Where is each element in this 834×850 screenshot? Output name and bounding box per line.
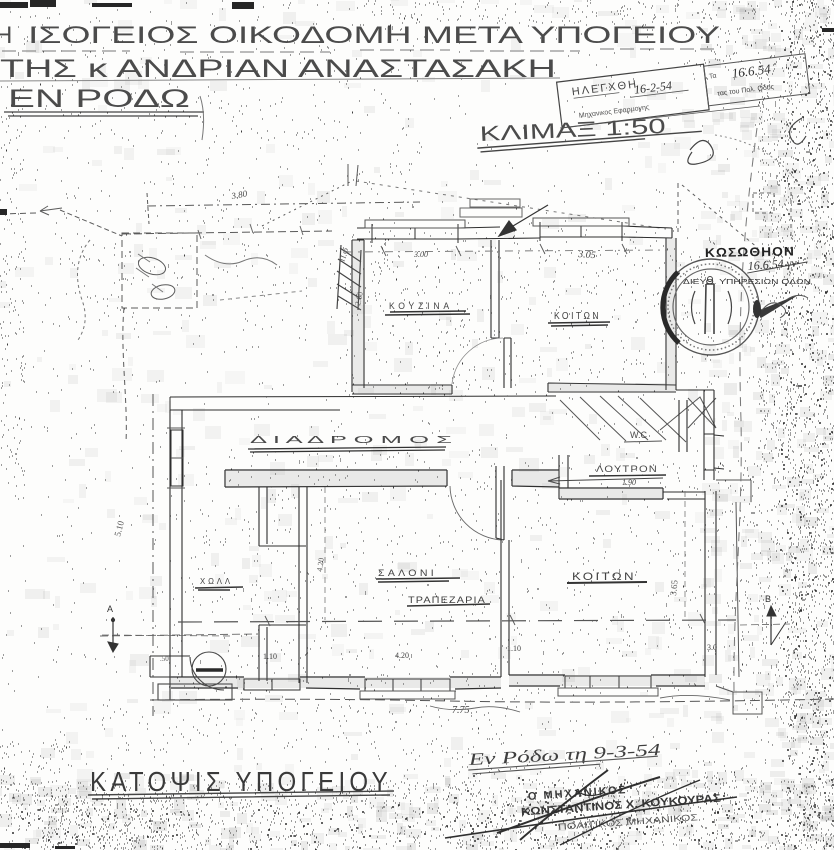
svg-text:ΚΟΥΖΙΝΑ: ΚΟΥΖΙΝΑ xyxy=(389,301,453,311)
svg-text:ΚΟΙΤΩΝ: ΚΟΙΤΩΝ xyxy=(554,310,601,322)
svg-text:W.C: W.C xyxy=(630,430,647,440)
svg-text:ΧΩΛΛ: ΧΩΛΛ xyxy=(200,577,233,586)
svg-text:ΙΣΟΓΕΙΟΣ ΟΙΚΟΔΟΜΗ ΜΕΤΑ ΥΠΟΓΕΙΟ: ΙΣΟΓΕΙΟΣ ΟΙΚΟΔΟΜΗ ΜΕΤΑ ΥΠΟΓΕΙΟΥ xyxy=(28,22,720,49)
svg-text:3.0: 3.0 xyxy=(707,643,717,652)
svg-text:ΛΟΥΤΡΟΝ: ΛΟΥΤΡΟΝ xyxy=(596,464,658,475)
svg-text:3.65: 3.65 xyxy=(668,579,680,596)
svg-text:1.10: 1.10 xyxy=(263,652,277,661)
svg-text:Α: Α xyxy=(107,604,113,614)
svg-text:1.10: 1.10 xyxy=(507,644,521,653)
svg-text:ΔΙΕΥΘ. ΥΠΗΡΕΣΙΩΝ ΟΔΩΝ: ΔΙΕΥΘ. ΥΠΗΡΕΣΙΩΝ ΟΔΩΝ xyxy=(683,279,811,286)
svg-text:ΣΑΛΟΝΙ: ΣΑΛΟΝΙ xyxy=(378,568,437,579)
svg-text:4.20: 4.20 xyxy=(395,651,409,660)
svg-text:ΚΟΙΤΩΝ: ΚΟΙΤΩΝ xyxy=(572,571,636,583)
svg-text:Η: Η xyxy=(0,22,12,49)
svg-text:Δ Ι Α Δ Ρ Ο Μ Ο Σ: Δ Ι Α Δ Ρ Ο Μ Ο Σ xyxy=(250,435,452,446)
svg-text:Τα: Τα xyxy=(709,73,717,81)
svg-text:Β: Β xyxy=(765,594,771,604)
svg-text:ΕΝ ΡΟΔΩ: ΕΝ ΡΟΔΩ xyxy=(8,85,190,113)
svg-text:7.75: 7.75 xyxy=(452,705,470,716)
svg-text:.50: .50 xyxy=(160,655,169,663)
